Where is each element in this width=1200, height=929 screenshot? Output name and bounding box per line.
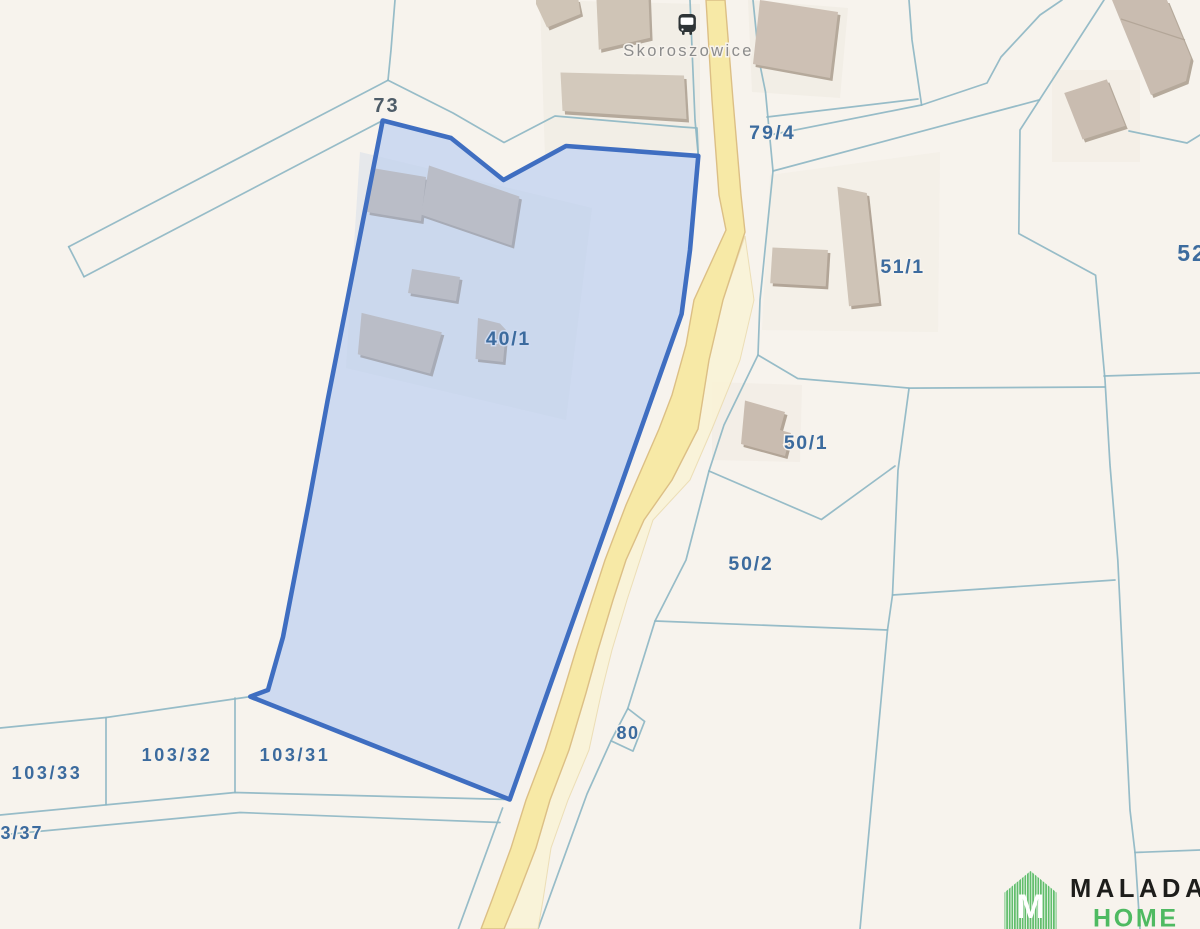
- svg-text:40/1: 40/1: [486, 328, 531, 350]
- svg-text:103/33: 103/33: [12, 763, 83, 783]
- svg-text:3/37: 3/37: [0, 823, 43, 843]
- svg-text:50/1: 50/1: [784, 432, 828, 454]
- svg-text:MALADA: MALADA: [1070, 875, 1200, 903]
- svg-text:51/1: 51/1: [880, 256, 924, 278]
- svg-text:M: M: [1016, 888, 1044, 926]
- svg-text:103/32: 103/32: [142, 745, 213, 765]
- svg-text:73: 73: [373, 95, 399, 117]
- svg-text:80: 80: [616, 723, 639, 743]
- svg-text:Skoroszowice: Skoroszowice: [623, 42, 754, 60]
- svg-text:HOME: HOME: [1093, 905, 1179, 929]
- svg-text:103/31: 103/31: [260, 745, 331, 765]
- svg-text:50/2: 50/2: [728, 553, 773, 575]
- svg-text:52: 52: [1177, 240, 1200, 266]
- svg-text:79/4: 79/4: [749, 122, 796, 144]
